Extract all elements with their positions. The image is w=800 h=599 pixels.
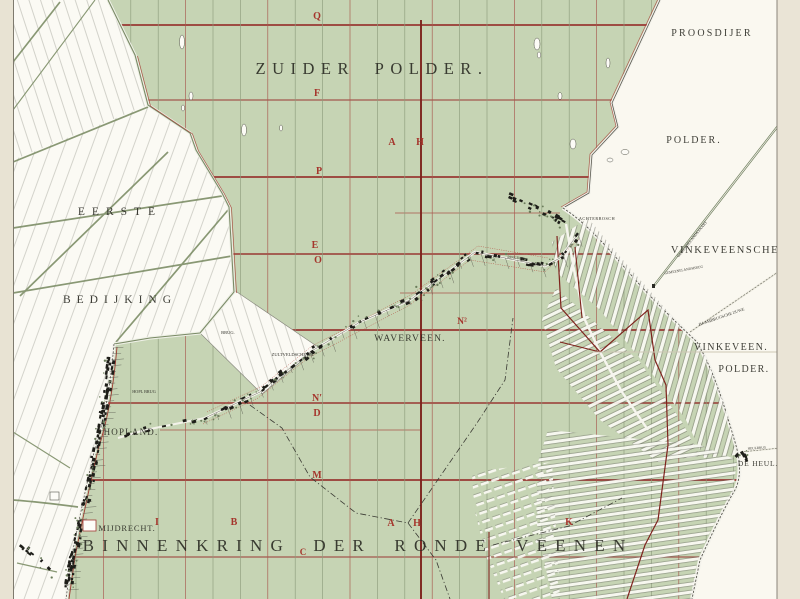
letter-d: D — [313, 408, 320, 419]
letter-c: C — [300, 547, 307, 557]
gemeenelands-bridge-mark — [652, 284, 655, 288]
label-bedijking: BEDIJKING — [63, 294, 177, 306]
letter-o: O — [314, 255, 322, 266]
label-proosdijer-polder: POLDER. — [666, 135, 721, 146]
letter-q: Q — [313, 11, 321, 22]
label-de-heul: DE HEUL. — [738, 459, 778, 468]
letter-a-north: A — [388, 137, 396, 148]
letter-i: I — [155, 517, 159, 528]
label-eerste: EERSTE — [78, 206, 162, 218]
label-hopland: HOPLAND. — [104, 427, 159, 437]
letter-f: F — [314, 88, 320, 99]
label-brug: BRUG. — [221, 330, 235, 335]
label-zuider-polder: ZUIDER POLDER. — [256, 59, 489, 78]
letter-h-south: H — [413, 518, 421, 529]
label-zultveldsche-brug: ZULTVELDSCHE BR. — [272, 352, 315, 357]
label-mijdrecht: MIJDRECHT. — [98, 523, 155, 533]
left-margin — [0, 0, 13, 599]
label-binnenkring: BINNENKRING DER RONDE VEENEN — [83, 536, 634, 555]
letter-n-accent: N′ — [312, 393, 322, 404]
mijdrecht-white-block — [50, 492, 59, 500]
letter-m: M — [312, 470, 322, 481]
label-achterbosch: ACHTERBOSCH — [579, 216, 615, 221]
map-canvas: ZUIDER POLDER. BINNENKRING DER RONDE VEE… — [0, 0, 800, 599]
label-hopland-brug: HOPL BRUG — [132, 389, 155, 394]
letter-a-south: A — [387, 518, 395, 529]
letter-e: E — [312, 240, 319, 251]
right-margin — [777, 0, 800, 599]
label-vinkeveen-polder: POLDER. — [718, 364, 769, 375]
map-sheet: ZUIDER POLDER. BINNENKRING DER RONDE VEE… — [0, 0, 800, 599]
letter-p: P — [316, 166, 322, 177]
letter-h-north: H — [416, 137, 424, 148]
label-waverveen: WAVERVEEN. — [374, 334, 446, 344]
label-proosdijer: PROOSDIJER — [671, 28, 752, 39]
letter-b: B — [231, 517, 238, 528]
letter-n-sup: N² — [457, 317, 467, 327]
label-vinkeveen: VINKEVEEN. — [694, 342, 768, 353]
letter-k: K — [565, 517, 573, 528]
mijdrecht-church-block — [83, 520, 96, 531]
